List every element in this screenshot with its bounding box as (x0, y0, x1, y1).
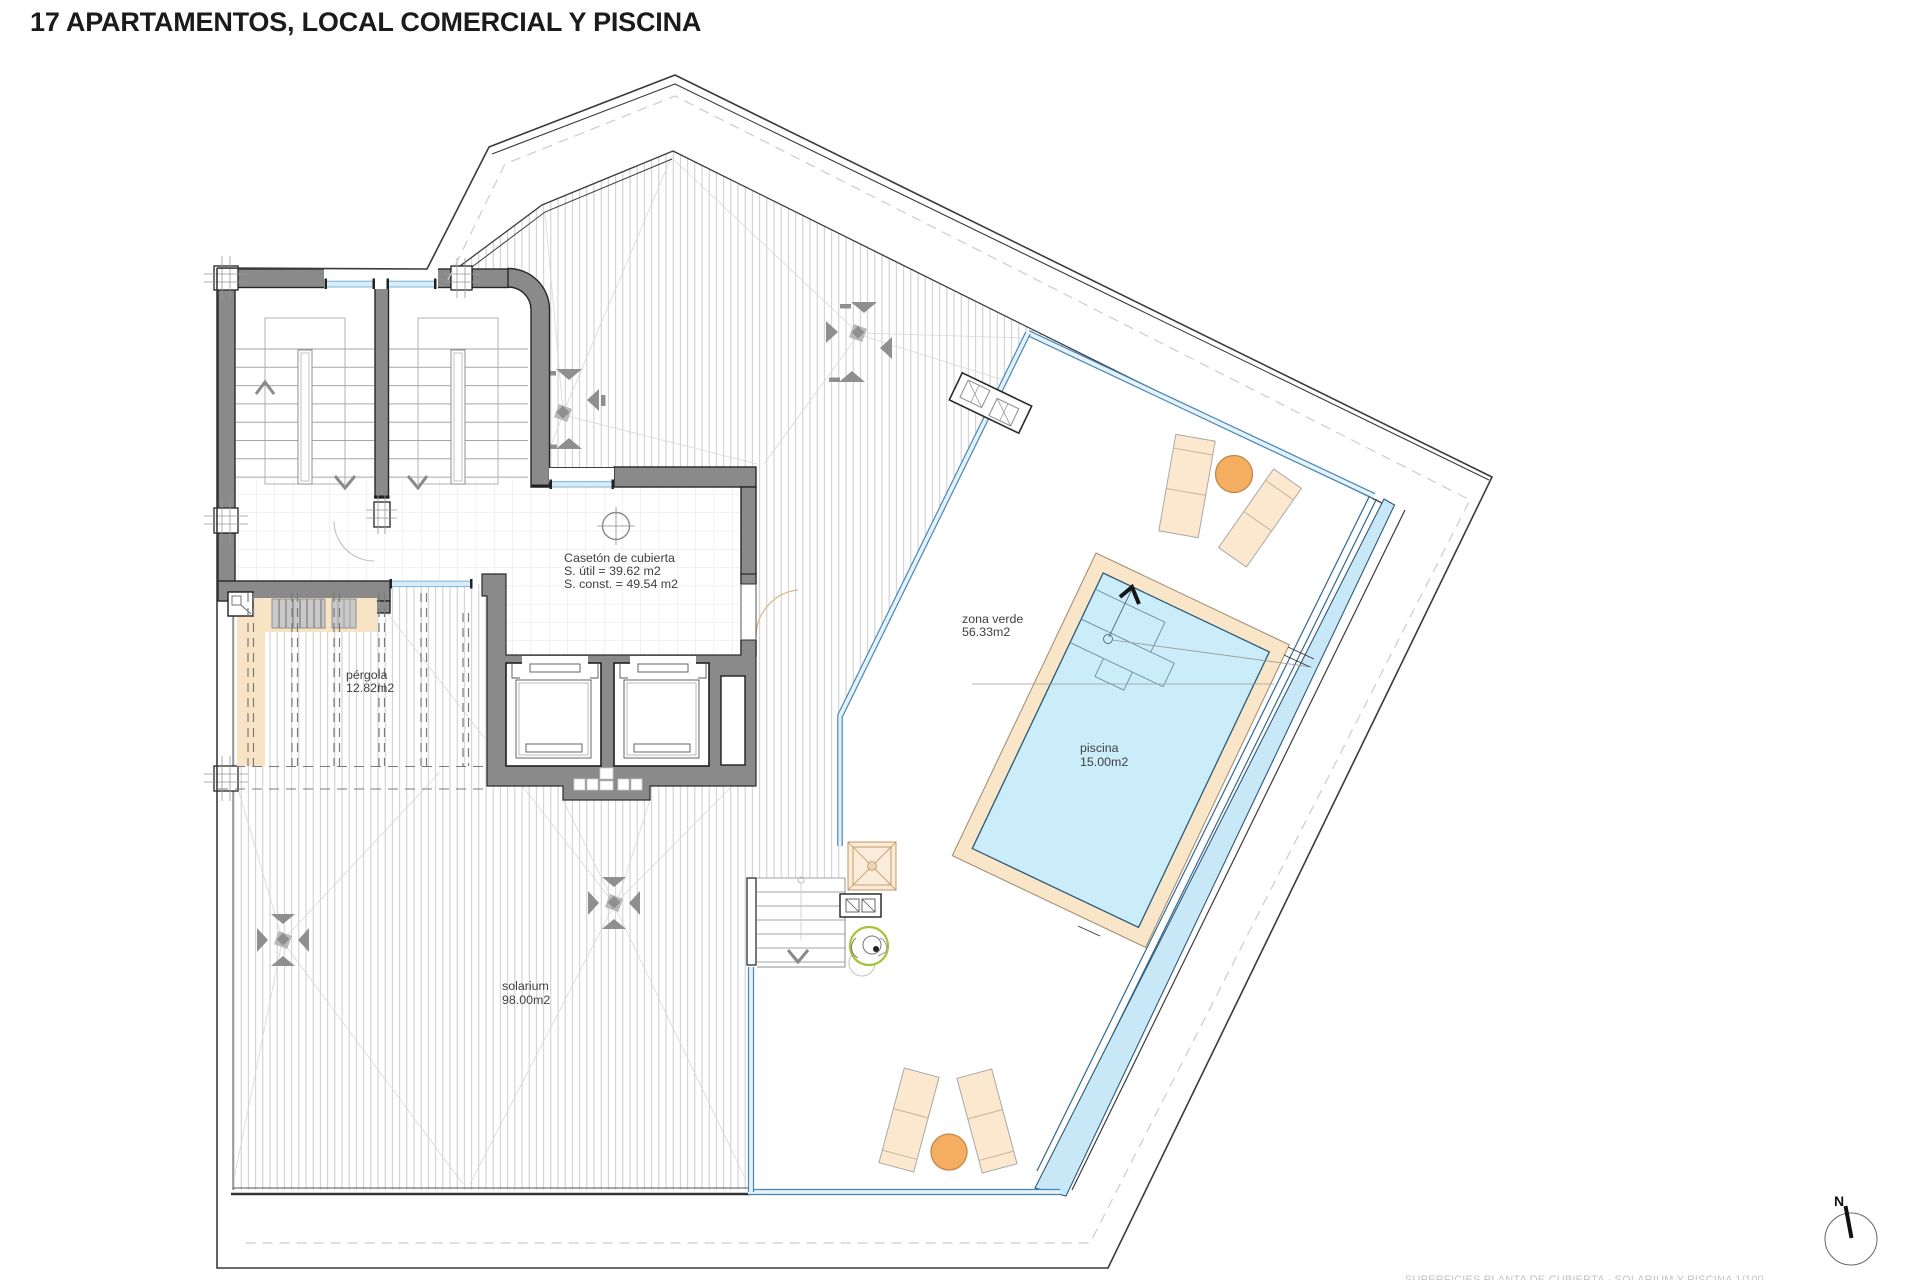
svg-text:SUPERFICIES PLANTA DE CUBIERTA: SUPERFICIES PLANTA DE CUBIERTA · SOLARIU… (1405, 1274, 1764, 1280)
svg-text:Casetón de cubierta: Casetón de cubierta (564, 551, 675, 565)
svg-text:solarium: solarium (502, 979, 549, 993)
svg-text:15.00m2: 15.00m2 (1080, 755, 1128, 769)
svg-text:S. const. = 49.54 m2: S. const. = 49.54 m2 (564, 577, 678, 591)
svg-text:zona verde: zona verde (962, 612, 1023, 626)
svg-text:pérgola: pérgola (346, 668, 387, 682)
svg-text:12.82m2: 12.82m2 (346, 681, 394, 695)
svg-text:N: N (1834, 1193, 1844, 1209)
svg-text:S. útil = 39.62 m2: S. útil = 39.62 m2 (564, 564, 661, 578)
svg-text:98.00m2: 98.00m2 (502, 993, 550, 1007)
svg-text:17 APARTAMENTOS, LOCAL COMERCI: 17 APARTAMENTOS, LOCAL COMERCIAL Y PISCI… (30, 7, 701, 37)
svg-text:piscina: piscina (1080, 741, 1119, 755)
svg-text:56.33m2: 56.33m2 (962, 625, 1010, 639)
